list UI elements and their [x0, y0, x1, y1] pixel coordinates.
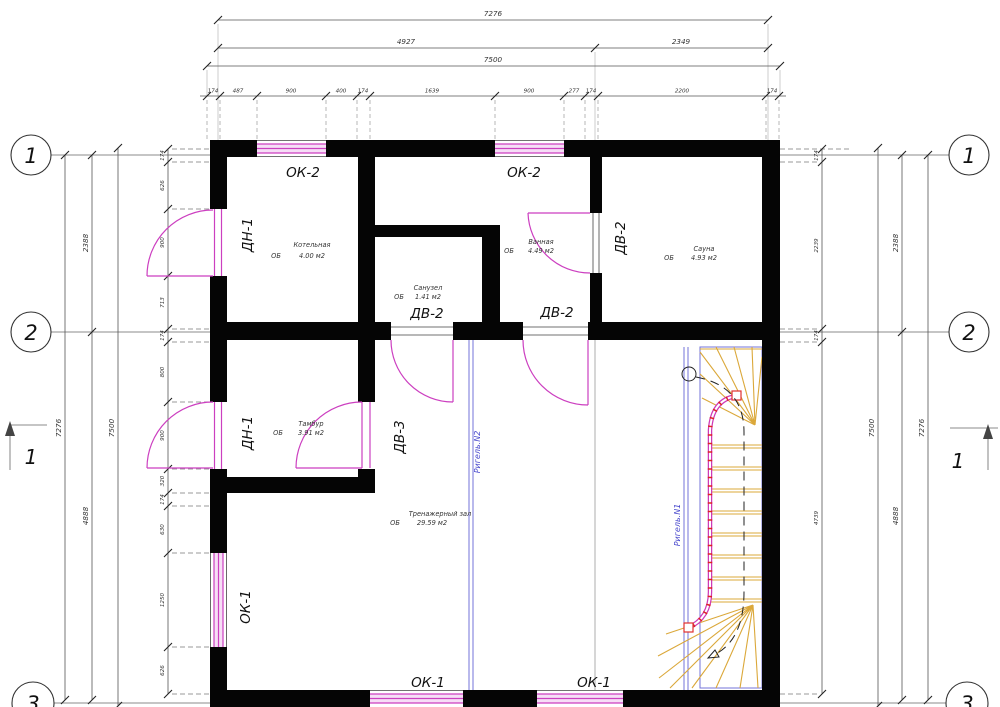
label-ok2: ОК-2: [507, 165, 541, 181]
room-vannaya: Ванная ОБ 4.49 м2: [504, 238, 554, 255]
dim-label: 7276: [917, 418, 926, 437]
dim-label: 7276: [54, 418, 63, 437]
dimensions-right: 174 2239 174 4739 7500 2388 4888 7276: [814, 144, 932, 707]
label-ok2: ОК-2: [286, 165, 320, 181]
dim-label: 2200: [675, 89, 690, 95]
room-ob: ОБ: [504, 247, 514, 255]
extension-lines: [172, 24, 850, 694]
label-dv2: ДВ-2: [613, 221, 629, 255]
dim-label: 4888: [81, 506, 90, 525]
dim-label: 174: [586, 89, 597, 95]
label-dv3: ДВ-3: [392, 420, 408, 454]
dim-label: 7500: [484, 55, 503, 64]
dim-label: 1250: [160, 592, 166, 607]
dim-label: 900: [160, 430, 166, 441]
dim-label: 4927: [397, 37, 416, 46]
section-label: 1: [25, 445, 38, 469]
room-area: 4.00 м2: [299, 252, 325, 260]
dimensions-left: 7276 2388 4888 7500 174 626 900 713 174 …: [54, 144, 172, 707]
room-ob: ОБ: [271, 252, 281, 260]
dim-label: 7500: [107, 418, 116, 437]
room-ob: ОБ: [390, 519, 400, 527]
dim-label: 2388: [891, 233, 900, 252]
dim-label: 7500: [867, 418, 876, 437]
window-ok2-2: [495, 140, 564, 157]
stair-treads-lower: [658, 605, 758, 688]
room-tambur: Тамбур ОБ 3.91 м2: [273, 420, 324, 437]
dim-label: 1639: [425, 89, 440, 95]
room-ob: ОБ: [394, 293, 404, 301]
dim-label: 174: [160, 494, 166, 505]
section-mark-right: 1: [950, 424, 998, 473]
dim-label: 174: [208, 89, 219, 95]
room-area: 4.49 м2: [528, 247, 554, 255]
dim-label: 487: [233, 89, 244, 95]
dim-label: 7276: [484, 9, 503, 18]
room-ob: ОБ: [664, 254, 674, 262]
room-kotelnaya: Котельная ОБ 4.00 м2: [271, 241, 330, 260]
axis-number-left-2: 2: [24, 321, 37, 345]
dim-label: 800: [160, 366, 166, 377]
stair-treads-straight: [708, 445, 762, 602]
room-area: 1.41 м2: [415, 293, 441, 301]
axis-number-right-1: 1: [962, 144, 975, 168]
door-dn1-lower: [147, 402, 227, 469]
dim-label: 2349: [672, 37, 691, 46]
beam-label-n1: Ригель.N1: [673, 504, 682, 547]
dim-label: 174: [358, 89, 369, 95]
room-area: 4.93 м2: [691, 254, 717, 262]
window-ok1-bottom-2: [537, 690, 623, 707]
floor-plan-drawing: 1 2 3 1 2 3 1 1 7276 4927 2349 7500 174 …: [0, 0, 1000, 707]
window-ok1-left: [210, 553, 227, 647]
room-name: Сауна: [694, 245, 715, 253]
room-sanuzel: Санузел ОБ 1.41 м2: [394, 284, 443, 301]
window-ok2-1: [257, 140, 326, 157]
label-dv2: ДВ-2: [539, 305, 573, 321]
label-dv2: ДВ-2: [409, 306, 443, 322]
dim-label: 713: [160, 297, 166, 308]
door-dn1-upper: [147, 209, 227, 276]
dim-label: 900: [286, 89, 297, 95]
label-dn1: ДН-1: [240, 218, 256, 253]
dim-label: 900: [524, 89, 535, 95]
axis-number-right-3: 3: [960, 692, 973, 707]
room-name: Тренажерный зал: [409, 510, 472, 518]
room-gym: Тренажерный зал ОБ 29.59 м2: [390, 510, 472, 527]
dim-label: 174: [160, 150, 166, 161]
door-dv2-vannaya: [523, 322, 588, 405]
label-ok1: ОК-1: [577, 675, 611, 691]
room-sauna: Сауна ОБ 4.93 м2: [664, 245, 717, 262]
dim-label: 626: [160, 180, 166, 191]
room-name: Ванная: [528, 238, 553, 246]
dim-label: 2239: [814, 238, 820, 253]
room-name: Котельная: [293, 241, 330, 249]
axis-number-left-1: 1: [24, 144, 37, 168]
axis-grid: 1 2 3 1 2 3: [11, 135, 989, 707]
room-area: 29.59 м2: [417, 519, 447, 527]
window-ok1-bottom-1: [370, 690, 463, 707]
dim-label: 174: [767, 89, 778, 95]
axis-number-right-2: 2: [962, 321, 975, 345]
dim-label: 626: [160, 665, 166, 676]
section-label: 1: [952, 449, 965, 473]
dim-label: 2388: [81, 233, 90, 252]
dim-label: 4888: [891, 506, 900, 525]
axis-number-left-3: 3: [26, 692, 39, 707]
label-dn1: ДН-1: [240, 416, 256, 451]
dim-label: 174: [160, 330, 166, 341]
room-name: Санузел: [414, 284, 443, 292]
room-ob: ОБ: [273, 429, 283, 437]
dim-label: 900: [160, 237, 166, 248]
label-ok1: ОК-1: [238, 590, 254, 624]
beam-label-n2: Ригель.N2: [473, 431, 482, 474]
label-ok1: ОК-1: [411, 675, 445, 691]
stair-treads-upper: [700, 347, 762, 425]
dim-label: 320: [160, 475, 166, 486]
dim-label: 277: [569, 89, 580, 95]
section-mark-left: 1: [5, 421, 47, 470]
dim-label: 400: [336, 89, 347, 95]
dim-label: 630: [160, 524, 166, 535]
dim-label: 174: [814, 330, 820, 341]
door-dv2-sanuzel: [391, 322, 453, 402]
room-area: 3.91 м2: [298, 429, 324, 437]
room-name: Тамбур: [298, 420, 323, 428]
dim-label: 174: [814, 150, 820, 161]
beam-lines: Ригель.N2 Ригель.N1: [469, 340, 688, 690]
dim-label: 4739: [814, 510, 820, 525]
dimensions-top: 7276 4927 2349 7500 174 487 900 400 174 …: [200, 9, 786, 100]
